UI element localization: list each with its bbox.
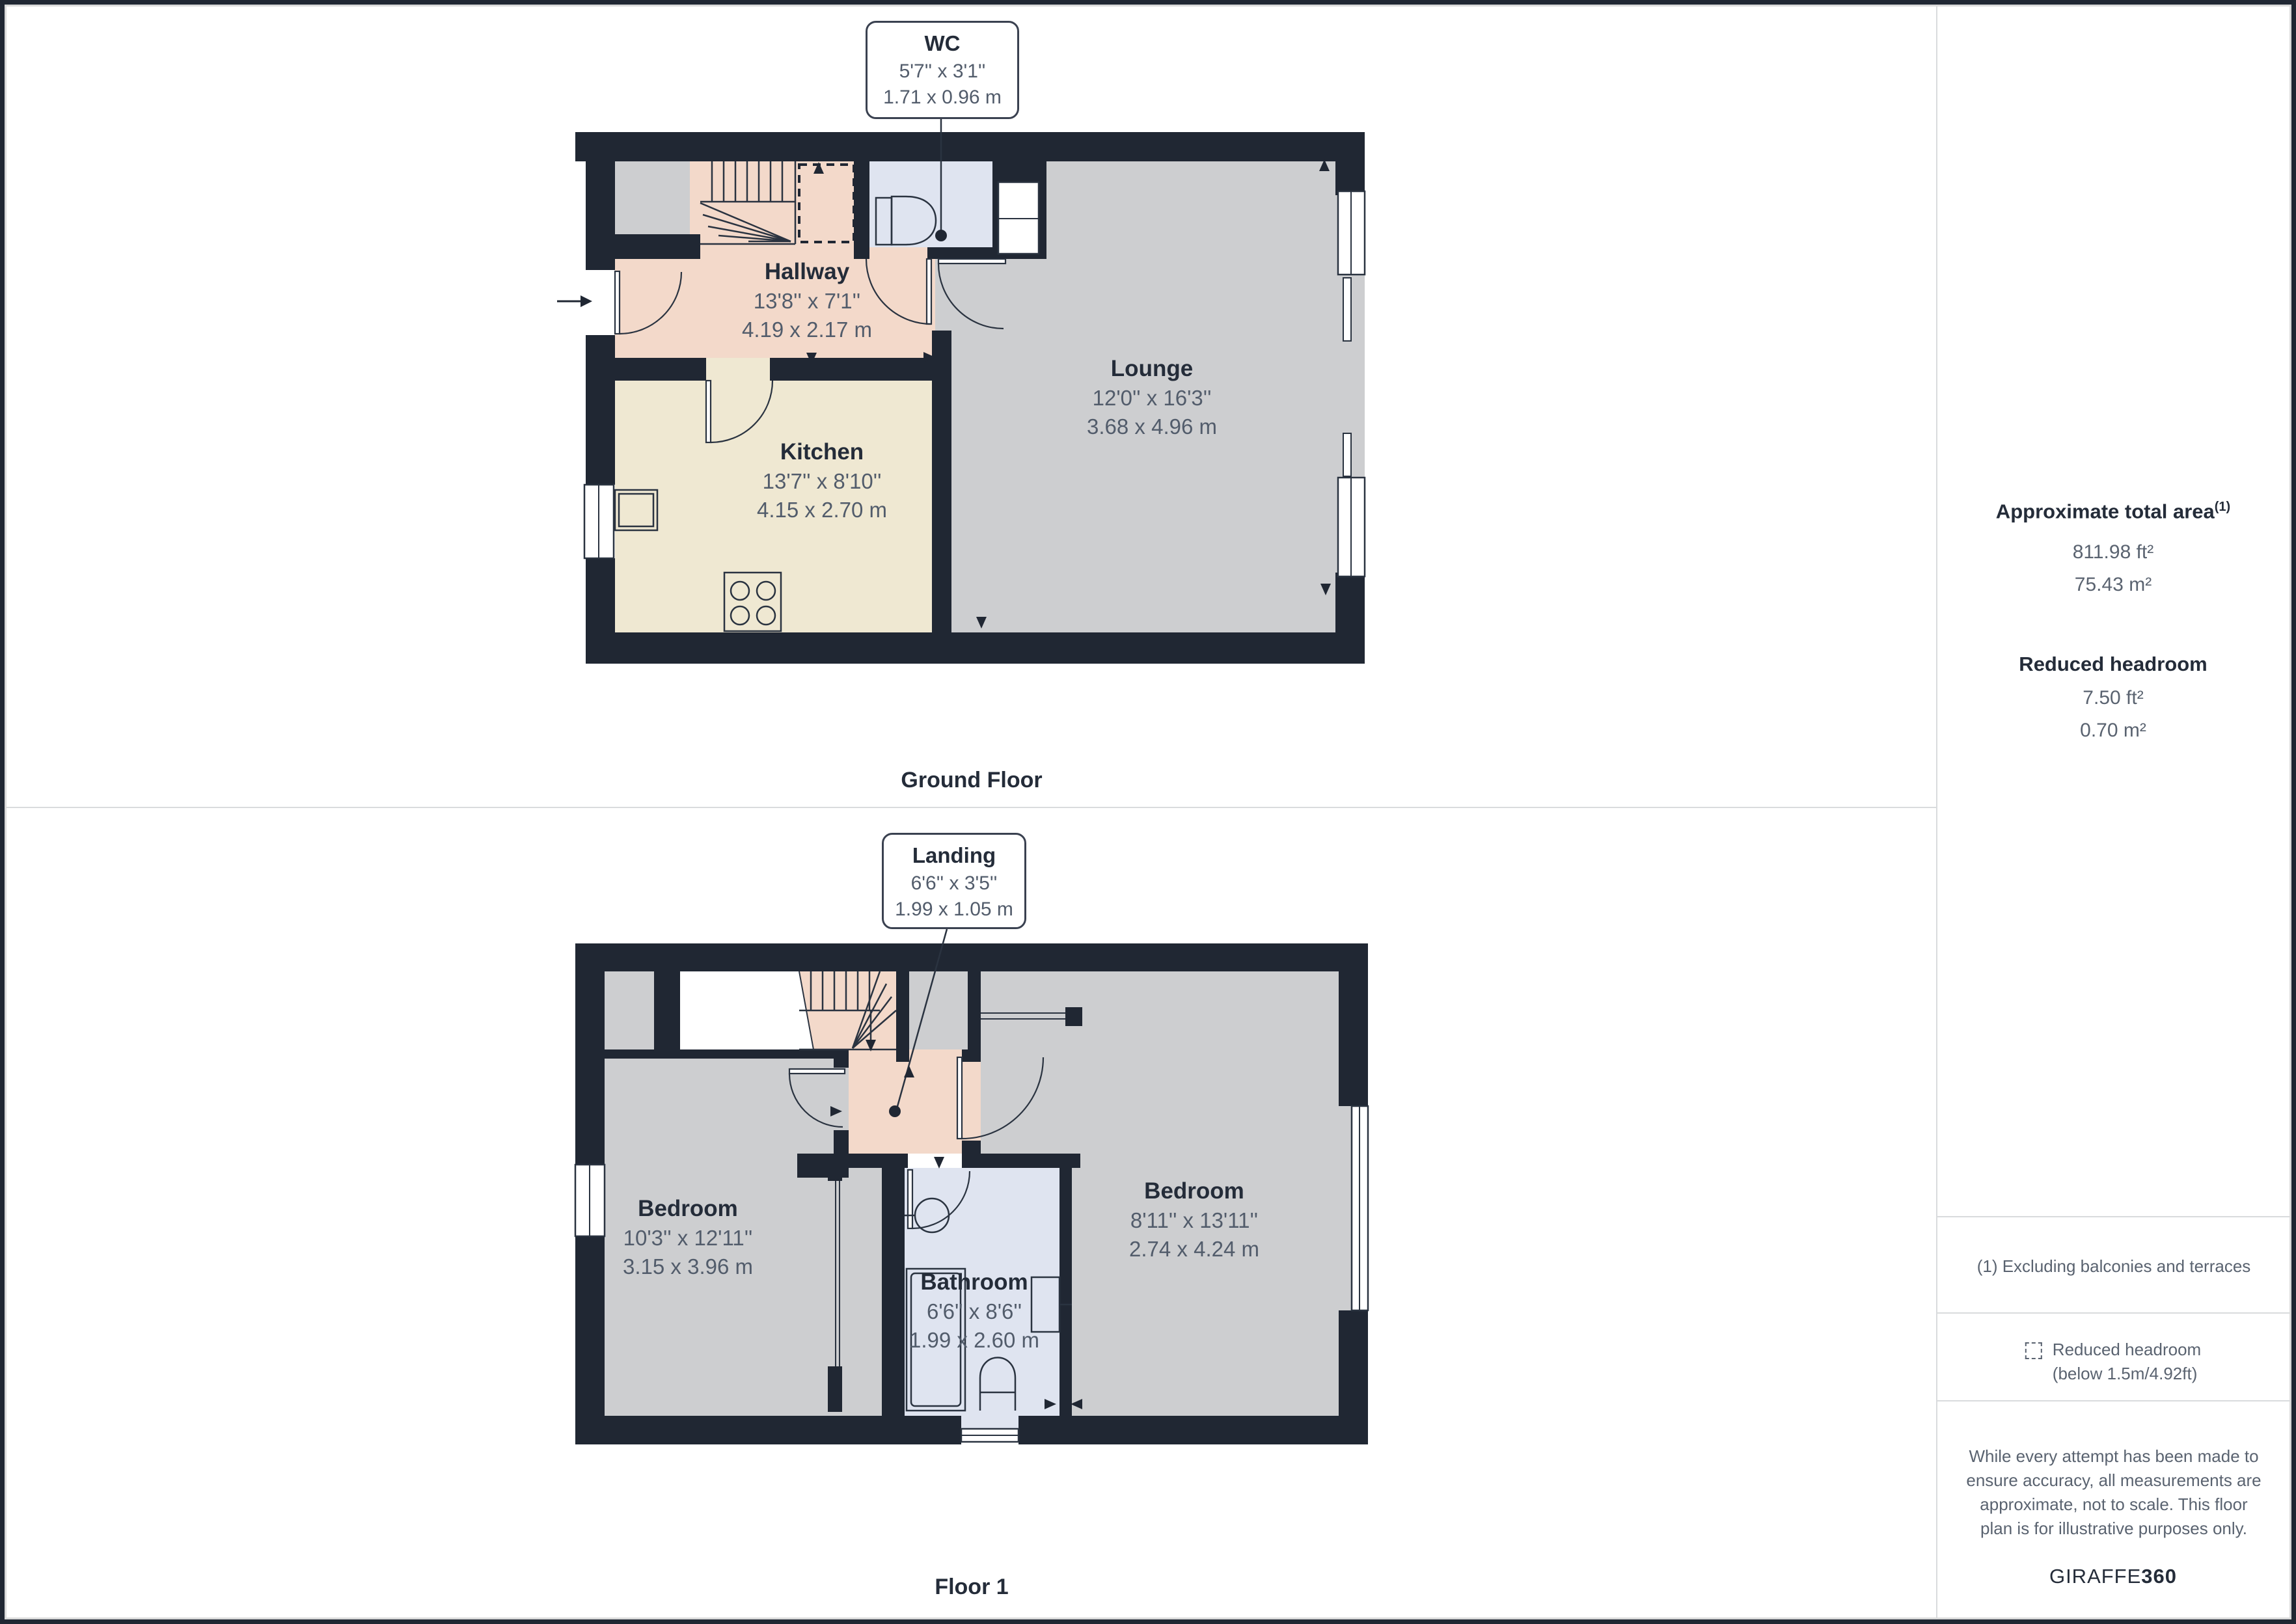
total-area-heading: Approximate total area(1) [1996, 500, 2230, 523]
reduced-headroom-legend: Reduced headroom (below 1.5m/4.92ft) [2025, 1338, 2201, 1386]
bathroom-label: Bathroom 6'6'' x 8'6'' 1.99 x 2.60 m [909, 1267, 1039, 1355]
ground-floor-caption: Ground Floor [901, 768, 1042, 793]
bedroom-left-label: Bedroom 10'3'' x 12'11'' 3.15 x 3.96 m [623, 1194, 753, 1281]
wc-callout-dot [935, 230, 947, 241]
room-metric: 4.19 x 2.17 m [742, 316, 872, 344]
room-name: Bedroom [623, 1194, 753, 1224]
floor1-caption: Floor 1 [935, 1575, 1008, 1600]
room-name: Hallway [742, 257, 872, 287]
brand-light: GIRAFFE [2049, 1565, 2141, 1588]
callout-room-name: Landing [884, 840, 1024, 871]
sidebar-section-divider [1937, 1312, 2291, 1314]
legend-line1: Reduced headroom [2053, 1338, 2201, 1362]
room-imperial: 8'11'' x 13'11'' [1129, 1206, 1259, 1235]
callout-room-name: WC [868, 28, 1017, 59]
disclaimer-line: ensure accuracy, all measurements are [1932, 1468, 2296, 1493]
disclaimer-line: While every attempt has been made to [1932, 1444, 2296, 1468]
room-imperial: 12'0'' x 16'3'' [1087, 384, 1217, 413]
total-area-metric: 75.43 m² [2075, 574, 2152, 596]
room-name: Lounge [1087, 354, 1217, 384]
floors-divider [5, 807, 1936, 808]
landing-callout-dot [889, 1105, 901, 1117]
floorplan-drawing [0, 0, 2296, 1624]
reduced-headroom-imperial: 7.50 ft² [2083, 687, 2143, 709]
room-metric: 4.15 x 2.70 m [757, 496, 887, 524]
footnote-marker: (1) [2215, 500, 2230, 514]
disclaimer-text: While every attempt has been made to ens… [1932, 1444, 2296, 1541]
room-imperial: 6'6'' x 8'6'' [909, 1297, 1039, 1326]
footnote-text: (1) Excluding balconies and terraces [1932, 1254, 2296, 1279]
stairwell-void [680, 971, 813, 1049]
room-imperial: 13'7'' x 8'10'' [757, 467, 887, 496]
callout-imperial: 6'6'' x 3'5'' [884, 871, 1024, 897]
reduced-headroom-heading: Reduced headroom [2019, 653, 2207, 676]
bedroom-right-label: Bedroom 8'11'' x 13'11'' 2.74 x 4.24 m [1129, 1176, 1259, 1264]
room-imperial: 13'8'' x 7'1'' [742, 287, 872, 316]
reduced-headroom-metric: 0.70 m² [2080, 720, 2146, 742]
landing-callout: Landing 6'6'' x 3'5'' 1.99 x 1.05 m [882, 833, 1026, 929]
ground-floor-plan [557, 119, 1365, 664]
brand-bold: 360 [2141, 1565, 2177, 1588]
callout-metric: 1.71 x 0.96 m [868, 85, 1017, 111]
room-metric: 3.68 x 4.96 m [1087, 413, 1217, 441]
callout-metric: 1.99 x 1.05 m [884, 897, 1024, 923]
sidebar-section-divider [1937, 1400, 2291, 1401]
room-metric: 3.15 x 3.96 m [623, 1252, 753, 1281]
floorplan-page: WC 5'7'' x 3'1'' 1.71 x 0.96 m Hallway 1… [0, 0, 2296, 1624]
room-metric: 1.99 x 2.60 m [909, 1326, 1039, 1355]
room-name: Kitchen [757, 437, 887, 467]
hall-closet [998, 182, 1039, 254]
disclaimer-line: approximate, not to scale. This floor [1932, 1493, 2296, 1517]
disclaimer-line: plan is for illustrative purposes only. [1932, 1517, 2296, 1541]
legend-line2: (below 1.5m/4.92ft) [2053, 1362, 2201, 1386]
hallway-label: Hallway 13'8'' x 7'1'' 4.19 x 2.17 m [742, 257, 872, 344]
legend-text: Reduced headroom (below 1.5m/4.92ft) [2053, 1338, 2201, 1386]
room-metric: 2.74 x 4.24 m [1129, 1235, 1259, 1264]
storage-floor [615, 161, 690, 234]
lounge-label: Lounge 12'0'' x 16'3'' 3.68 x 4.96 m [1087, 354, 1217, 441]
callout-imperial: 5'7'' x 3'1'' [868, 59, 1017, 85]
sidebar-section-divider [1937, 1216, 2291, 1217]
total-area-imperial: 811.98 ft² [2073, 541, 2154, 563]
wc-callout: WC 5'7'' x 3'1'' 1.71 x 0.96 m [866, 21, 1019, 119]
entrance-arrow [557, 295, 592, 307]
room-name: Bathroom [909, 1267, 1039, 1297]
total-area-label: Approximate total area [1996, 500, 2215, 522]
room-name: Bedroom [1129, 1176, 1259, 1206]
room-imperial: 10'3'' x 12'11'' [623, 1224, 753, 1252]
kitchen-label: Kitchen 13'7'' x 8'10'' 4.15 x 2.70 m [757, 437, 887, 524]
giraffe360-logo: GIRAFFE360 [2049, 1565, 2177, 1588]
reduced-headroom-icon [2025, 1342, 2042, 1359]
sidebar-divider [1936, 5, 1937, 1619]
